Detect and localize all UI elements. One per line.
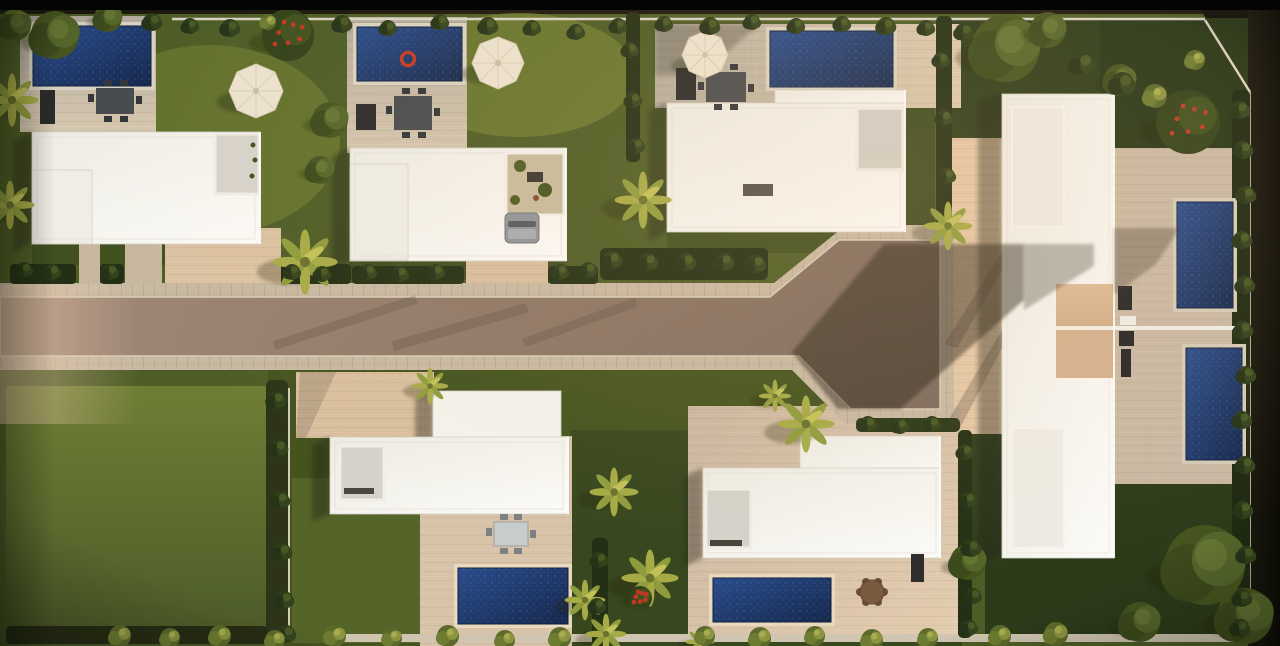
aerial-render	[0, 0, 1280, 646]
vignette	[0, 0, 1280, 646]
screenshot-canvas	[0, 0, 1280, 646]
letterbox-top	[0, 0, 1280, 10]
